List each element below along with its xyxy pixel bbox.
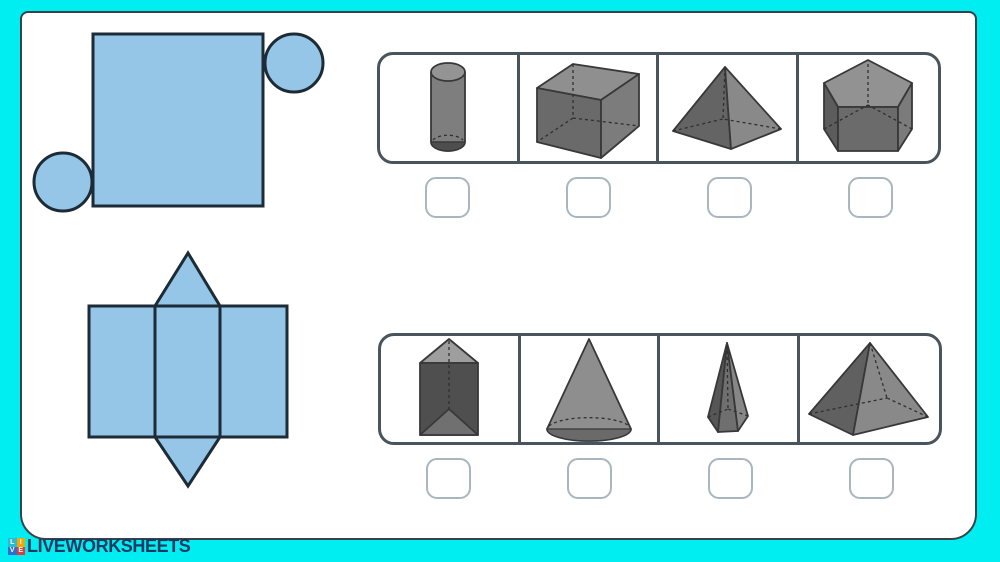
logo-grid-letter: L: [8, 538, 17, 547]
option-cell-cone: [521, 336, 661, 442]
answer-checkbox-q1-cylinder[interactable]: [425, 177, 470, 218]
question-1-answer-row: [377, 177, 941, 218]
net-square-with-two-circles-icon: [30, 28, 330, 228]
option-cell-triangular-prism: [381, 336, 521, 442]
answer-checkbox-q2-cone[interactable]: [567, 458, 612, 499]
pentagonal-prism-icon: [816, 57, 920, 159]
answer-checkbox-q2-pentagonal-pyramid[interactable]: [708, 458, 753, 499]
question-2-options-box: [378, 333, 942, 445]
triangular-prism-icon: [417, 336, 481, 442]
worksheet-canvas: { "app": { "name": "match-nets-to-3d-sha…: [0, 0, 1000, 562]
cylinder-icon: [428, 61, 468, 155]
option-cell-cylinder: [380, 55, 520, 161]
liveworksheets-logo-text: LIVEWORKSHEETS: [27, 536, 190, 557]
liveworksheets-logo[interactable]: L I V E LIVEWORKSHEETS: [8, 536, 190, 557]
answer-checkbox-q1-pentagonal-prism[interactable]: [848, 177, 893, 218]
option-cell-square-pyramid: [659, 55, 799, 161]
question-2: [378, 333, 942, 499]
square-pyramid-icon: [667, 61, 787, 155]
option-cell-pentagonal-prism: [799, 55, 939, 161]
question-2-answer-row: [378, 458, 942, 499]
option-cell-pentagonal-pyramid: [660, 336, 800, 442]
logo-grid-letter: I: [17, 538, 26, 547]
question-1: [377, 52, 941, 218]
logo-grid-letter: V: [8, 547, 17, 556]
option-cell-square-pyramid-wide: [800, 336, 940, 442]
answer-checkbox-q2-square-pyramid[interactable]: [849, 458, 894, 499]
logo-grid-letter: E: [17, 547, 26, 556]
question-1-options-box: [377, 52, 941, 164]
answer-checkbox-q2-triangular-prism[interactable]: [426, 458, 471, 499]
liveworksheets-logo-icon: L I V E: [8, 538, 25, 555]
cube-icon: [529, 56, 647, 160]
option-cell-cube: [520, 55, 660, 161]
answer-checkbox-q1-square-pyramid[interactable]: [707, 177, 752, 218]
pentagonal-pyramid-icon: [705, 339, 751, 439]
square-pyramid-wide-icon: [806, 338, 932, 440]
cone-icon: [543, 336, 635, 442]
answer-checkbox-q1-cube[interactable]: [566, 177, 611, 218]
net-triangular-prism-icon: [80, 247, 300, 492]
